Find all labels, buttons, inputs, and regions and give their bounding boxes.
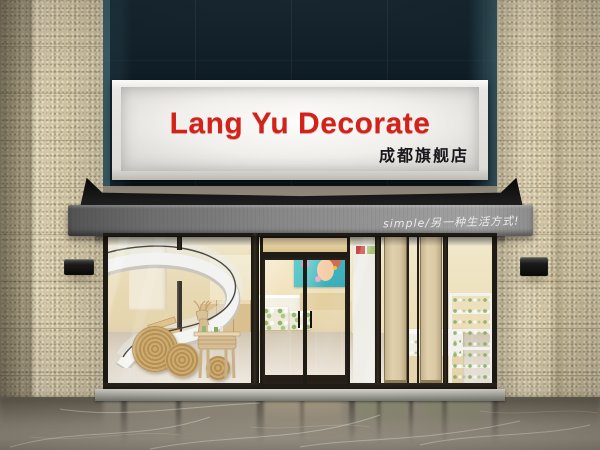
- wood-pier: [384, 237, 407, 387]
- glass-mullion: [407, 237, 409, 385]
- door-frame: [260, 255, 350, 387]
- door-handle: [310, 311, 312, 328]
- marble-veins: [0, 397, 600, 450]
- glass-reflection: [108, 237, 251, 385]
- storefront-render: Lang Yu Decorate 成都旗舰店: [0, 0, 600, 450]
- glass-mullion: [417, 237, 419, 385]
- door-handle: [298, 311, 300, 328]
- signboard-lightbox: Lang Yu Decorate 成都旗舰店: [121, 87, 479, 171]
- pavement-floor: [0, 397, 600, 450]
- awning-slogan: simple/另一种生活方式!: [382, 213, 519, 232]
- store-name: Lang Yu Decorate: [121, 109, 479, 139]
- entrance-door-assembly: [258, 233, 352, 389]
- door-right-leaf: [305, 258, 347, 384]
- glass-mullion: [443, 237, 448, 385]
- awning-shadow: [95, 236, 505, 246]
- glass-mullion: [375, 237, 381, 385]
- threshold-step: [95, 389, 505, 401]
- signboard: Lang Yu Decorate 成都旗舰店: [112, 80, 488, 180]
- wood-pier: [420, 237, 442, 387]
- storefront-frame-right: [492, 233, 497, 393]
- storefront-frame-left: [103, 233, 108, 393]
- branch-label: 成都旗舰店: [379, 142, 469, 166]
- door-left-leaf: [263, 258, 305, 384]
- storefront-glazing: [103, 233, 497, 393]
- awning-valance: simple/另一种生活方式!: [68, 205, 533, 236]
- door-center-post: [303, 258, 307, 384]
- wall-lamp-left: [64, 259, 94, 275]
- wall-lamp-right: [520, 257, 548, 276]
